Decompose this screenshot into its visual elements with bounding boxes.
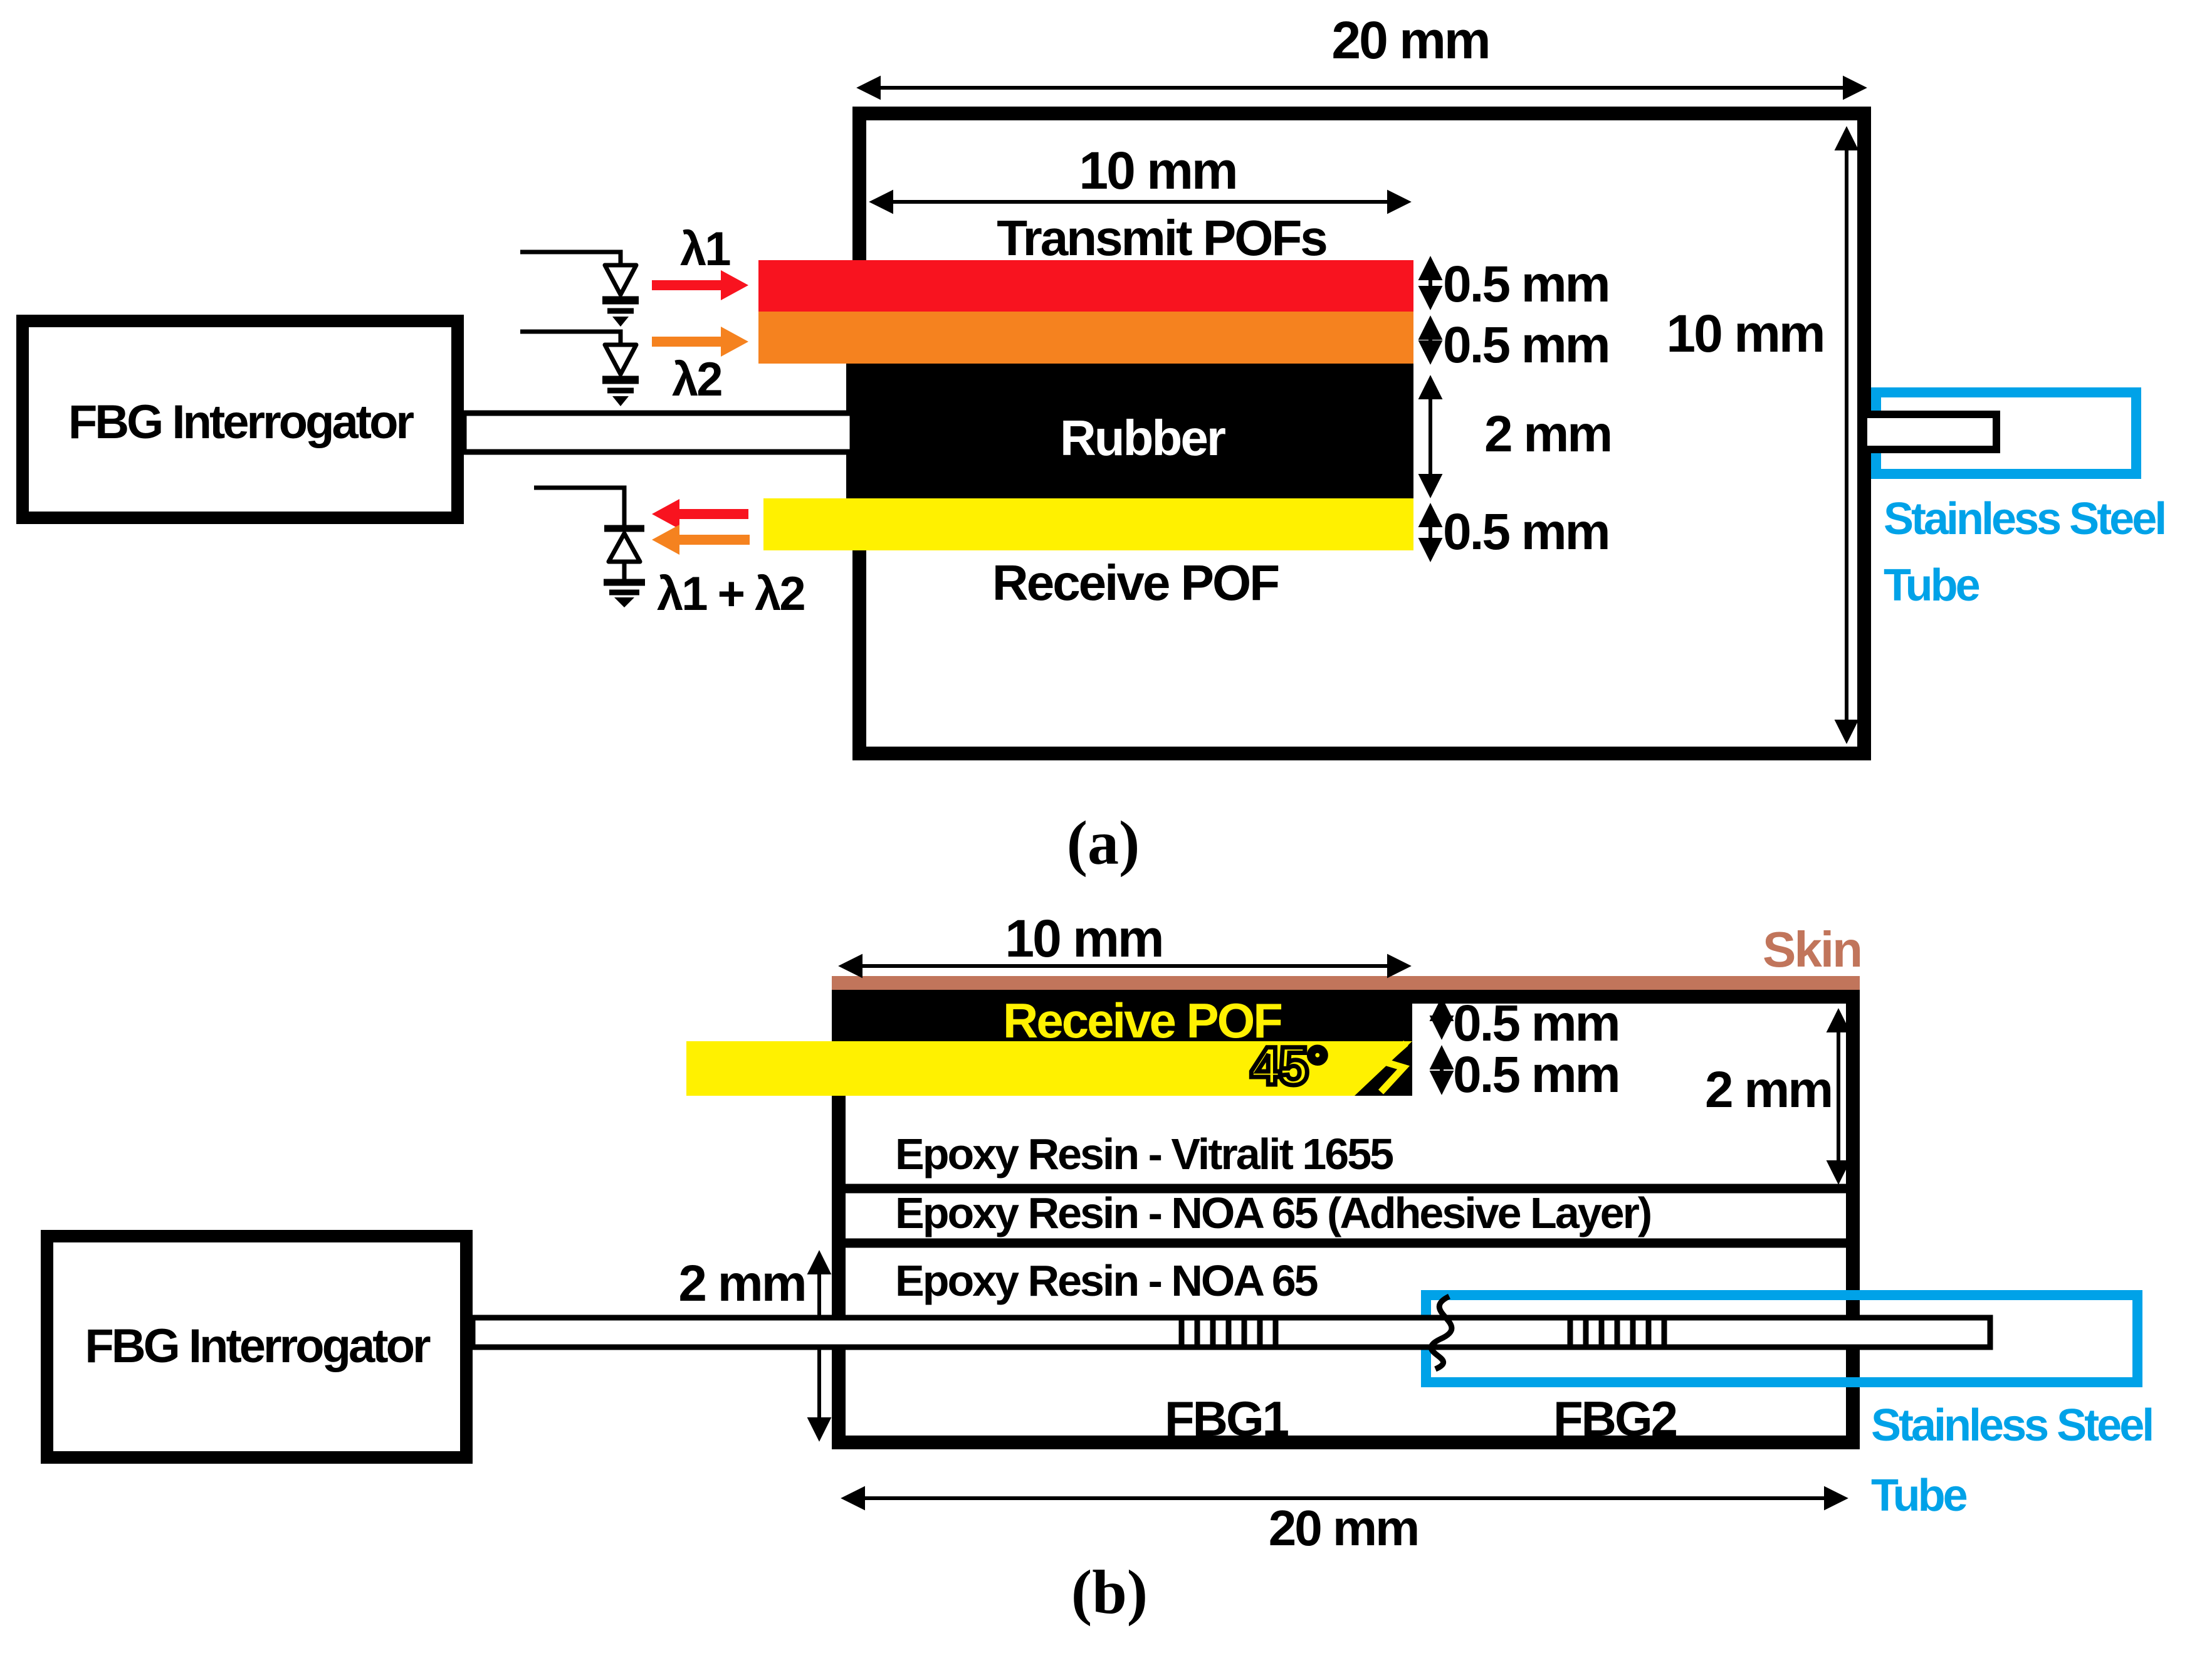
dim-label-10mm-b: 10 mm	[965, 912, 1203, 965]
dim-label-05mm-1: 0.5 mm	[1443, 259, 1609, 310]
dim-label-20mm-b: 20 mm	[1224, 1503, 1462, 1553]
stainless-tube-label-a-line1: Stainless Steel	[1884, 496, 2164, 542]
stainless-tube-label-a-line2: Tube	[1884, 563, 1978, 608]
caption-b: (b)	[1044, 1561, 1175, 1624]
stainless-tube-label-b-line2: Tube	[1871, 1473, 1966, 1518]
fbg1-label: FBG1	[1163, 1394, 1289, 1443]
dim-label-2mm-a: 2 mm	[1484, 409, 1611, 460]
dim-label-10mm-a-height: 10 mm	[1626, 307, 1864, 360]
photodiode-icon	[534, 488, 645, 607]
dim-label-10mm-a-inner: 10 mm	[1035, 144, 1280, 197]
fbg2-grating	[1570, 1319, 1664, 1346]
dim-label-05mm-3: 0.5 mm	[1443, 507, 1609, 558]
caption-a: (a)	[1037, 812, 1169, 874]
dim-label-20mm-a: 20 mm	[1288, 14, 1533, 66]
led-icon-1	[520, 252, 639, 327]
dim-label-05mm-b1: 0.5 mm	[1453, 998, 1619, 1049]
stainless-tube-label-b-line1: Stainless Steel	[1871, 1403, 2152, 1448]
angle-45-label: 45°	[1250, 1039, 1326, 1093]
lambda1-out-arrow	[652, 499, 748, 529]
fbg-interrogator-label-a: FBG Interrogator	[29, 399, 451, 446]
lambda1-label: λ1	[680, 226, 730, 273]
skin-label: Skin	[1763, 925, 1861, 975]
fbg-interrogator-label-b: FBG Interrogator	[53, 1323, 460, 1370]
epoxy-noa65-label: Epoxy Resin - NOA 65	[895, 1259, 1317, 1303]
epoxy-noa65-adhesive-label: Epoxy Resin - NOA 65 (Adhesive Layer)	[895, 1191, 1650, 1235]
receive-pof-label-a: Receive POF	[947, 558, 1323, 608]
lambda2-in-arrow	[652, 327, 748, 357]
lambda2-label: λ2	[672, 356, 721, 404]
fbg1-grating	[1182, 1319, 1276, 1346]
dim-label-05mm-b2: 0.5 mm	[1453, 1049, 1619, 1101]
epoxy-vitralit-label: Epoxy Resin - Vitralit 1655	[895, 1132, 1392, 1176]
dim-label-2mm-b-left: 2 mm	[674, 1258, 809, 1310]
fbg2-label: FBG2	[1552, 1394, 1677, 1443]
lambda-sum-label: λ1 + λ2	[657, 570, 804, 618]
led-icon-2	[520, 332, 639, 406]
fiber-end-a	[1864, 414, 1996, 449]
dim-label-05mm-2: 0.5 mm	[1443, 320, 1609, 371]
fiber-a	[464, 413, 852, 452]
figure-canvas: 20 mm 10 mm Transmit POFs Rubber Receive…	[0, 0, 2202, 1680]
lambda2-out-arrow	[652, 525, 750, 555]
rubber-label: Rubber	[954, 413, 1330, 463]
transmit-pofs-label: Transmit POFs	[973, 213, 1350, 263]
dim-label-2mm-b-right: 2 mm	[1705, 1064, 1832, 1116]
